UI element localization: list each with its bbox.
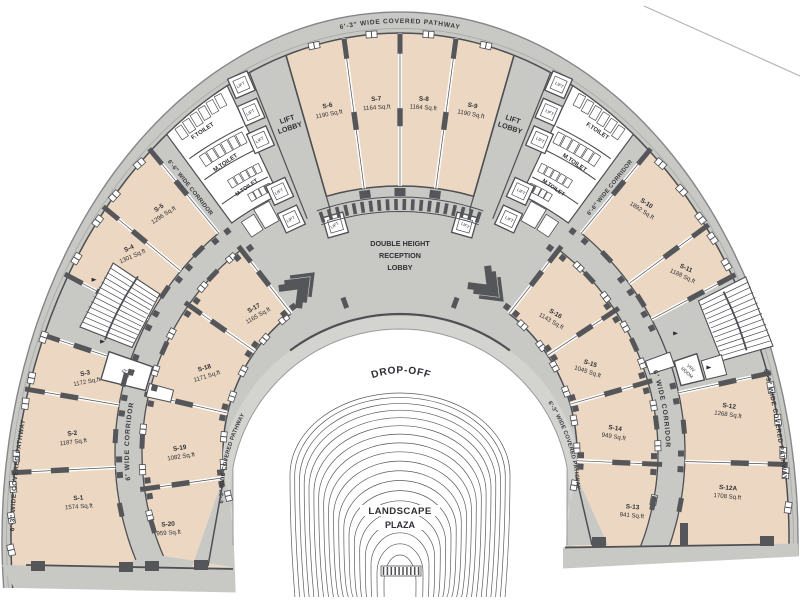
- svg-text:S-20: S-20: [161, 521, 175, 529]
- svg-text:PLAZA: PLAZA: [385, 520, 415, 530]
- svg-text:S-2: S-2: [67, 430, 78, 438]
- svg-text:S-1: S-1: [73, 495, 84, 503]
- svg-text:RECEPTION: RECEPTION: [379, 251, 421, 260]
- svg-text:S-8: S-8: [419, 95, 430, 103]
- svg-text:LOBBY: LOBBY: [387, 263, 412, 272]
- svg-text:S-13: S-13: [626, 503, 641, 511]
- svg-text:LANDSCAPE: LANDSCAPE: [368, 506, 431, 517]
- svg-text:S-7: S-7: [371, 95, 382, 103]
- svg-text:DOUBLE HEIGHT: DOUBLE HEIGHT: [370, 239, 430, 248]
